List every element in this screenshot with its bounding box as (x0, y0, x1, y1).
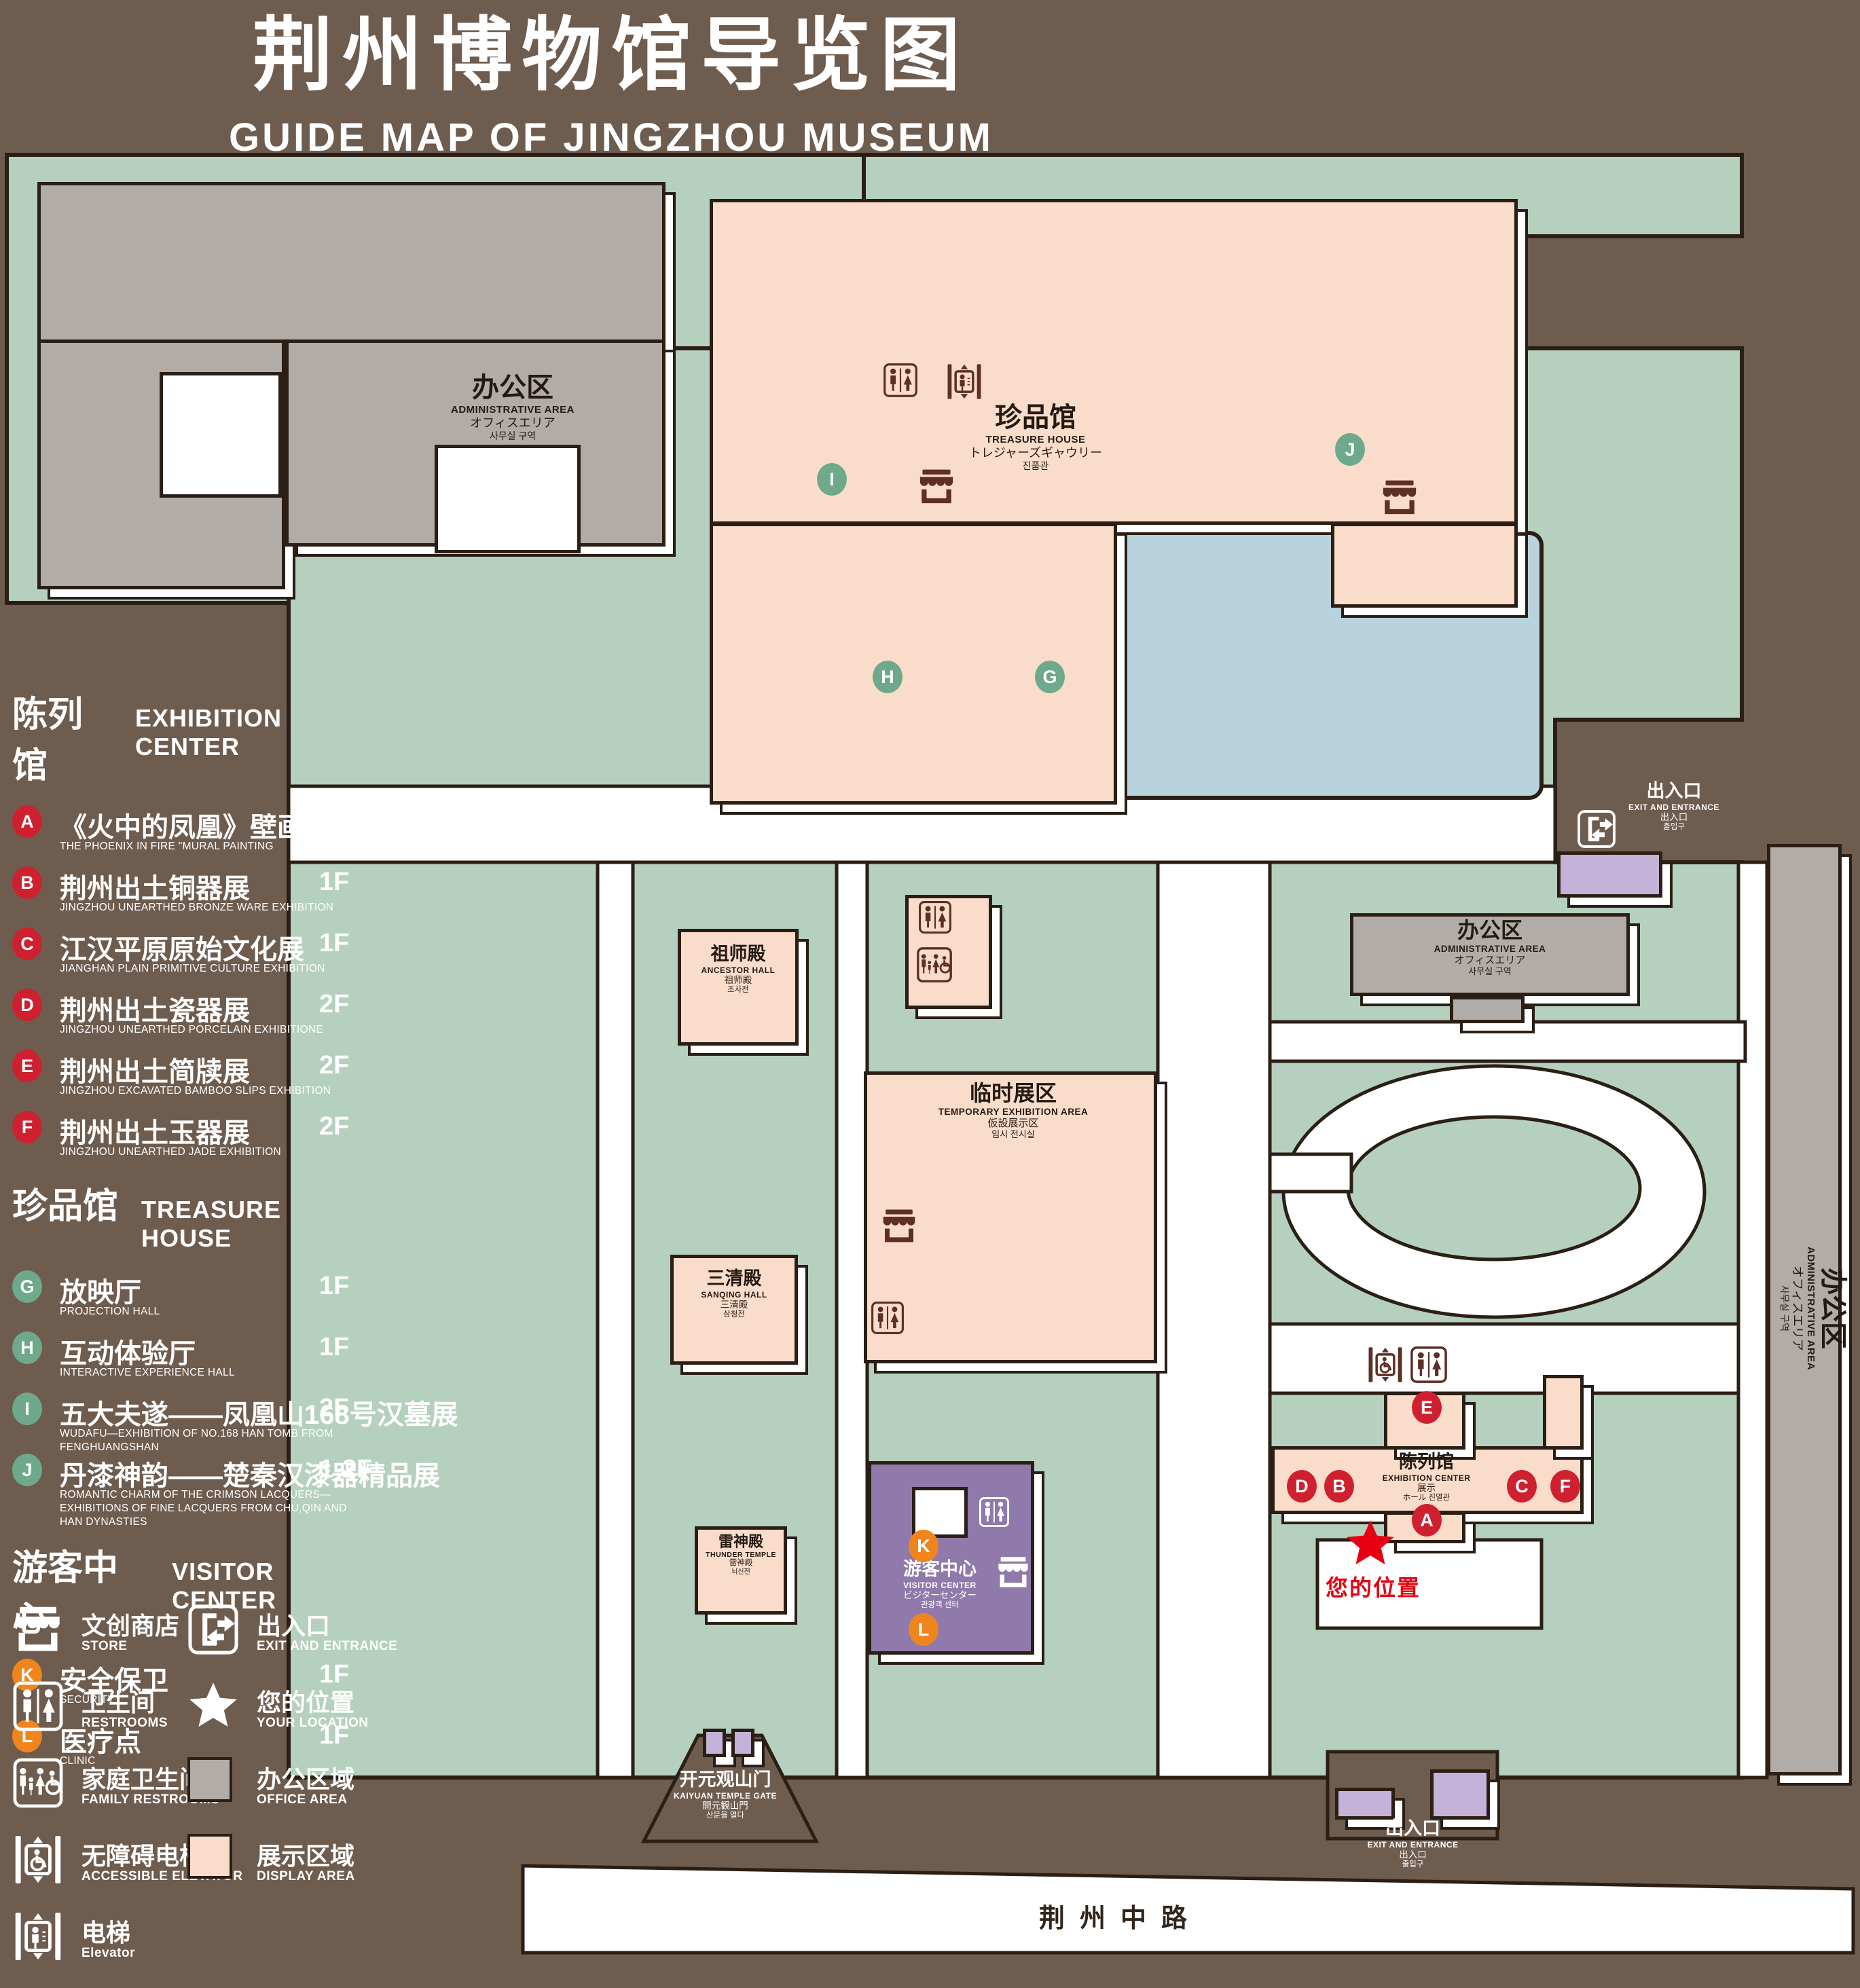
family-restroom-icon (916, 946, 953, 983)
symbol-en: RESTROOMS (81, 1716, 168, 1731)
legend-item: A 《火中的凤凰》壁画 THE PHOENIX IN FIRE "MURAL P… (12, 805, 379, 866)
symbol-legend-row: 展示区域 DISPLAY AREA (187, 1834, 391, 1911)
legend-item-zh: 丹漆神韵——楚秦汉漆器精品展 (60, 1454, 440, 1493)
symbol-legend-row: 电梯 Elevator (12, 1911, 189, 1987)
symbol-legend-row: 卫生间 RESTROOMS (12, 1680, 189, 1757)
restroom-icon (918, 900, 952, 934)
road-exhibition-north (1270, 1324, 1745, 1393)
exit-icon (187, 1604, 239, 1655)
legend-item: D 荆州出土瓷器展 JINGZHOU UNEARTHED PORCELAIN E… (12, 989, 379, 1050)
legend-item-badge: C (12, 927, 42, 960)
accessible-elevator-icon (12, 1834, 64, 1885)
legend-item-en: JINGZHOU UNEARTHED BRONZE WARE EXHIBITIO… (60, 901, 365, 915)
symbol-legend-left: 文创商店 STORE 卫生间 RESTROOMS 家庭卫生间 FAMILY RE… (12, 1604, 189, 1987)
store-icon (880, 1207, 918, 1245)
store-icon (12, 1604, 64, 1655)
legend-item: H 互动体验厅 INTERACTIVE EXPERIENCE HALL 1F (12, 1331, 379, 1393)
map-badge-B: B (1324, 1470, 1354, 1503)
exit-bottom-gate (1430, 1769, 1490, 1820)
label-admin-right: 办公区ADMINISTRATIVE AREAオフィスエリア사무실 구역 (1353, 918, 1627, 977)
symbol-zh: 文创商店 (81, 1606, 179, 1642)
legend-items-treasure: G 放映厅 PROJECTION HALL 1F H 互动体验厅 INTERAC… (12, 1270, 379, 1534)
label-gate: 开元观山门KAIYUAN TEMPLE GATE開元観山門산문을 열다 (637, 1769, 814, 1821)
legend-item-badge: D (12, 989, 42, 1021)
building-admin-right-tab (1450, 996, 1525, 1023)
map-badge-I: I (817, 463, 847, 496)
symbol-legend-row: 文创商店 STORE (12, 1604, 189, 1680)
legend-item: I 五大夫遂——凤凰山168号汉墓展 WUDAFU—EXHIBITION OF … (12, 1393, 379, 1454)
exit-top-gate (1557, 851, 1662, 898)
restroom-icon (1410, 1346, 1448, 1384)
symbol-zh: 家庭卫生间 (81, 1760, 204, 1795)
legend-item: B 荆州出土铜器展 JINGZHOU UNEARTHED BRONZE WARE… (12, 866, 379, 927)
display-swatch-icon (187, 1834, 239, 1885)
legend-item-badge: J (12, 1454, 42, 1486)
legend-item-floor: 2F (319, 1051, 349, 1080)
store-icon (996, 1555, 1031, 1590)
legend-item-floor: 2F (319, 1394, 349, 1423)
legend-section-title-en: EXHIBITION CENTER (135, 704, 379, 761)
symbol-zh: 电梯 (81, 1913, 130, 1949)
road-admin-south (1270, 1022, 1745, 1061)
legend-item-en: THE PHOENIX IN FIRE "MURAL PAINTING (60, 840, 365, 853)
elevator-icon (945, 363, 983, 401)
symbol-legend-row: 出入口 EXIT AND ENTRANCE (187, 1604, 391, 1680)
symbol-en: STORE (81, 1639, 128, 1654)
store-icon (917, 467, 956, 507)
legend-item-badge: A (12, 805, 42, 838)
your-location-star-icon (1345, 1518, 1396, 1570)
family-restroom-icon (12, 1757, 64, 1809)
legend-item-badge: I (12, 1393, 42, 1425)
star-icon (187, 1680, 239, 1732)
legend-item-zh: 放映厅 (60, 1270, 141, 1310)
garden-path-arm (1270, 1154, 1351, 1192)
map-badge-D: D (1287, 1470, 1317, 1503)
map-badge-F: F (1550, 1470, 1580, 1503)
elevator-icon (12, 1911, 64, 1962)
map-badge-E: E (1412, 1391, 1442, 1424)
symbol-zh: 卫生间 (81, 1683, 155, 1718)
symbol-zh: 无障碍电梯 (81, 1837, 204, 1872)
symbol-en: YOUR LOCATION (257, 1716, 368, 1731)
label-visitor-center: 游客中心VISITOR CENTERビジターセンター관광객 센터 (872, 1559, 1008, 1610)
gate-pillar (731, 1729, 754, 1757)
label-temporary-area: 临时展区TEMPORARY EXHIBITION AREA仮設展示区임시 전시실 (871, 1081, 1156, 1140)
symbol-zh: 出入口 (257, 1606, 330, 1642)
restroom-icon (12, 1680, 64, 1732)
map-badge-J: J (1335, 433, 1365, 466)
legend-item-floor: 1F (319, 807, 349, 836)
legend-item-zh: 荆州出土瓷器展 (60, 989, 250, 1028)
symbol-legend-right: 出入口 EXIT AND ENTRANCE 您的位置 YOUR LOCATION… (187, 1604, 391, 1911)
symbol-en: EXIT AND ENTRANCE (257, 1639, 397, 1654)
legend-item: F 荆州出土玉器展 JINGZHOU UNEARTHED JADE EXHIBI… (12, 1111, 379, 1172)
legend-item-en: ROMANTIC CHARM OF THE CRIMSON LACQUERS—E… (60, 1488, 365, 1529)
legend-item-floor: 1-2F (319, 1455, 372, 1484)
legend-item-zh: 荆州出土简牍展 (60, 1050, 250, 1089)
map-badge-C: C (1507, 1470, 1537, 1503)
legend-item-zh: 五大夫遂——凤凰山168号汉墓展 (60, 1393, 458, 1432)
symbol-legend-row: 无障碍电梯 ACCESSIBLE ELEVATOR (12, 1834, 189, 1911)
road-vertical-3 (1158, 862, 1270, 1778)
legend-section-header: 陈列馆 EXHIBITION CENTER (12, 686, 379, 788)
symbol-legend-row: 家庭卫生间 FAMILY RESTROOMS (12, 1757, 189, 1834)
label-exhibition-center: 陈列馆EXHIBITION CENTER展示ホール 진열관 (1343, 1452, 1510, 1503)
road-label: 荆州中路 (1039, 1897, 1202, 1934)
map-badge-G: G (1035, 661, 1065, 693)
exit-bottom-gate (1335, 1788, 1395, 1820)
legend-items-exhibition: A 《火中的凤凰》壁画 THE PHOENIX IN FIRE "MURAL P… (12, 805, 379, 1172)
label-thunder-temple: 雷神殿THUNDER TEMPLE雷神殿뇌신전 (695, 1533, 787, 1577)
legend-item-en: JIANGHAN PLAIN PRIMITIVE CULTURE EXHIBIT… (60, 962, 365, 976)
legend-item-en: WUDAFU—EXHIBITION OF NO.168 HAN TOMB FRO… (60, 1427, 365, 1454)
legend-item: J 丹漆神韵——楚秦汉漆器精品展 ROMANTIC CHARM OF THE C… (12, 1454, 379, 1534)
symbol-en: OFFICE AREA (257, 1792, 348, 1807)
restroom-icon (871, 1301, 905, 1335)
legend-item-badge: F (12, 1111, 42, 1143)
legend-item-floor: 1F (319, 1272, 349, 1301)
label-treasure-house: 珍品馆TREASURE HOUSEトレジャーズギャウリー진품관 (903, 402, 1168, 472)
road-vertical-1 (598, 862, 633, 1778)
legend-item-zh: 《火中的凤凰》壁画 (60, 805, 304, 845)
label-ancestor-hall: 祖师殿ANCESTOR HALL祖师殿조사전 (678, 944, 799, 995)
map-badge-K: K (909, 1530, 938, 1562)
building-admin-top (37, 182, 665, 345)
legend-item-floor: 1F (319, 868, 349, 897)
legend-item: C 江汉平原原始文化展 JIANGHAN PLAIN PRIMITIVE CUL… (12, 927, 379, 989)
symbol-zh: 展示区域 (257, 1837, 354, 1872)
legend-section-title-zh: 珍品馆 (12, 1177, 118, 1228)
courtyard (160, 372, 282, 498)
label-admin-top: 办公区ADMINISTRATIVE AREAオフィスエリア사무실 구역 (377, 372, 649, 442)
legend-item: E 荆州出土简牍展 JINGZHOU EXCAVATED BAMBOO SLIP… (12, 1050, 379, 1111)
label-sanqing-hall: 三清殿SANQING HALL三清殿삼청전 (670, 1268, 798, 1320)
legend-item-badge: G (12, 1270, 42, 1303)
legend-item-zh: 江汉平原原始文化展 (60, 927, 304, 967)
symbol-legend-row: 您的位置 YOUR LOCATION (187, 1680, 391, 1757)
legend-item-en: JINGZHOU UNEARTHED PORCELAIN EXHIBITIONE (60, 1023, 365, 1037)
legend-section-title-zh: 陈列馆 (12, 686, 112, 788)
symbol-zh: 您的位置 (257, 1683, 354, 1718)
symbol-zh: 办公区域 (257, 1760, 354, 1795)
map-badge-H: H (873, 661, 902, 693)
building-treasure-house-tab (1331, 523, 1518, 608)
legend-item-floor: 1F (319, 929, 349, 958)
symbol-legend-row: 办公区域 OFFICE AREA (187, 1757, 391, 1834)
legend-item-en: PROJECTION HALL (60, 1305, 365, 1319)
office-swatch-icon (187, 1757, 239, 1809)
legend-item-en: JINGZHOU UNEARTHED JADE EXHIBITION (60, 1145, 365, 1159)
map-badge-A: A (1412, 1504, 1442, 1536)
legend-item-zh: 荆州出土铜器展 (60, 866, 250, 906)
legend-item-en: INTERACTIVE EXPERIENCE HALL (60, 1366, 365, 1380)
legend-section-title-en: TREASURE HOUSE (141, 1196, 379, 1253)
accessible-elevator-icon (1366, 1346, 1404, 1384)
exit-icon (1577, 809, 1616, 849)
legend-item-zh: 互动体验厅 (60, 1331, 196, 1371)
legend-item-badge: E (12, 1050, 42, 1082)
legend-item-badge: B (12, 866, 42, 899)
legend-section-header: 珍品馆 TREASURE HOUSE (12, 1177, 379, 1253)
label-exit-bottom: 出入口EXIT AND ENTRANCE出入口출입구 (1347, 1818, 1479, 1870)
restroom-icon (979, 1496, 1010, 1528)
map-badge-L: L (909, 1613, 938, 1646)
legend-item-floor: 1F (319, 1333, 349, 1362)
legend-item-floor: 2F (319, 1112, 349, 1141)
your-location-label: 您的位置 (1326, 1570, 1421, 1602)
legend-item-en: JINGZHOU EXCAVATED BAMBOO SLIPS EXHIBITI… (60, 1084, 365, 1098)
restroom-icon (883, 363, 918, 398)
legend-item-zh: 荆州出土玉器展 (60, 1111, 250, 1150)
garden-lawn (1348, 1117, 1640, 1259)
legend-item-floor: 2F (319, 990, 349, 1019)
building-exhibition-right-tab (1543, 1375, 1584, 1450)
guide-map-poster: 荆州博物馆导览图 GUIDE MAP OF JINGZHOU MUSEUM (0, 0, 1860, 1988)
store-icon (1380, 478, 1419, 517)
courtyard (435, 445, 581, 553)
label-admin-side: 办公区ADMINISTRATIVE AREAオフィスエリア사무실 구역 (1760, 1173, 1848, 1444)
gate-pillar (703, 1729, 726, 1757)
symbol-en: DISPLAY AREA (257, 1869, 355, 1884)
road-vertical-2 (837, 862, 867, 1778)
label-exit-top: 出入口EXIT AND ENTRANCE出入口출입구 (1596, 781, 1752, 832)
symbol-en: Elevator (81, 1946, 135, 1961)
legend-item: G 放映厅 PROJECTION HALL 1F (12, 1270, 379, 1331)
legend-item-badge: H (12, 1331, 42, 1364)
